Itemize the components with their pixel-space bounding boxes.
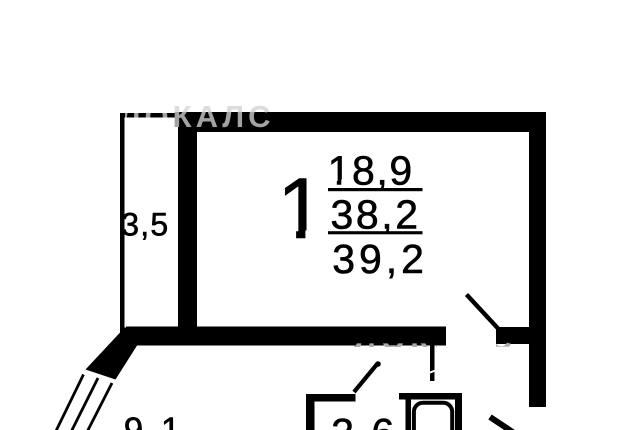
svg-text:38,2: 38,2 (331, 192, 421, 238)
svg-text:39,2: 39,2 (332, 236, 428, 282)
svg-text:9,1: 9,1 (124, 411, 185, 430)
svg-text:3,5: 3,5 (121, 206, 169, 242)
svg-text:1: 1 (277, 161, 325, 257)
svg-text:18,9: 18,9 (328, 148, 414, 194)
svg-text:3,6: 3,6 (331, 410, 397, 430)
